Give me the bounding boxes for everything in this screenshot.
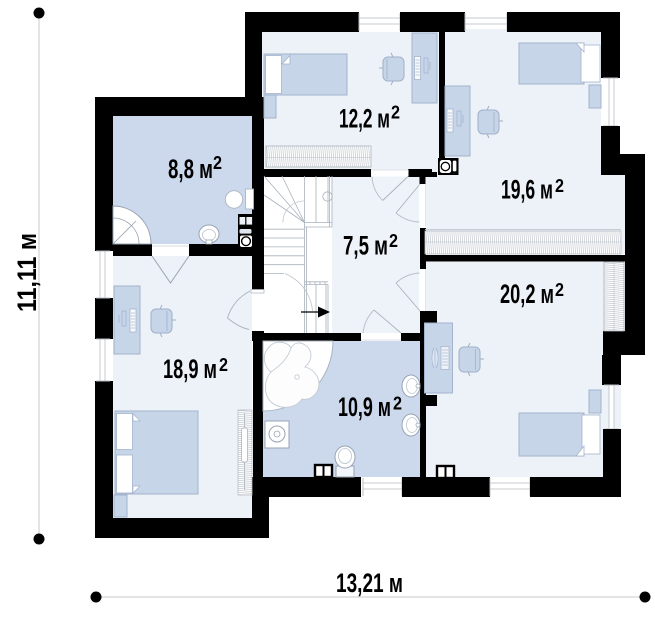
- svg-text:2: 2: [555, 279, 564, 300]
- svg-text:7,5 м: 7,5 м: [343, 231, 388, 261]
- svg-text:2: 2: [219, 354, 228, 375]
- svg-text:10,9 м: 10,9 м: [338, 392, 391, 422]
- svg-text:2: 2: [555, 175, 564, 196]
- svg-text:18,9 м: 18,9 м: [163, 354, 217, 384]
- svg-text:20,2 м: 20,2 м: [500, 279, 554, 309]
- svg-text:2: 2: [391, 102, 400, 123]
- svg-text:13,21 м: 13,21 м: [336, 568, 403, 598]
- svg-text:2: 2: [393, 393, 402, 414]
- svg-text:2: 2: [389, 230, 398, 251]
- svg-text:11,11 м: 11,11 м: [12, 233, 42, 312]
- svg-text:2: 2: [213, 152, 222, 173]
- svg-text:12,2 м: 12,2 м: [339, 104, 390, 134]
- svg-text:8,8 м: 8,8 м: [168, 154, 213, 184]
- svg-text:19,6 м: 19,6 м: [501, 175, 553, 205]
